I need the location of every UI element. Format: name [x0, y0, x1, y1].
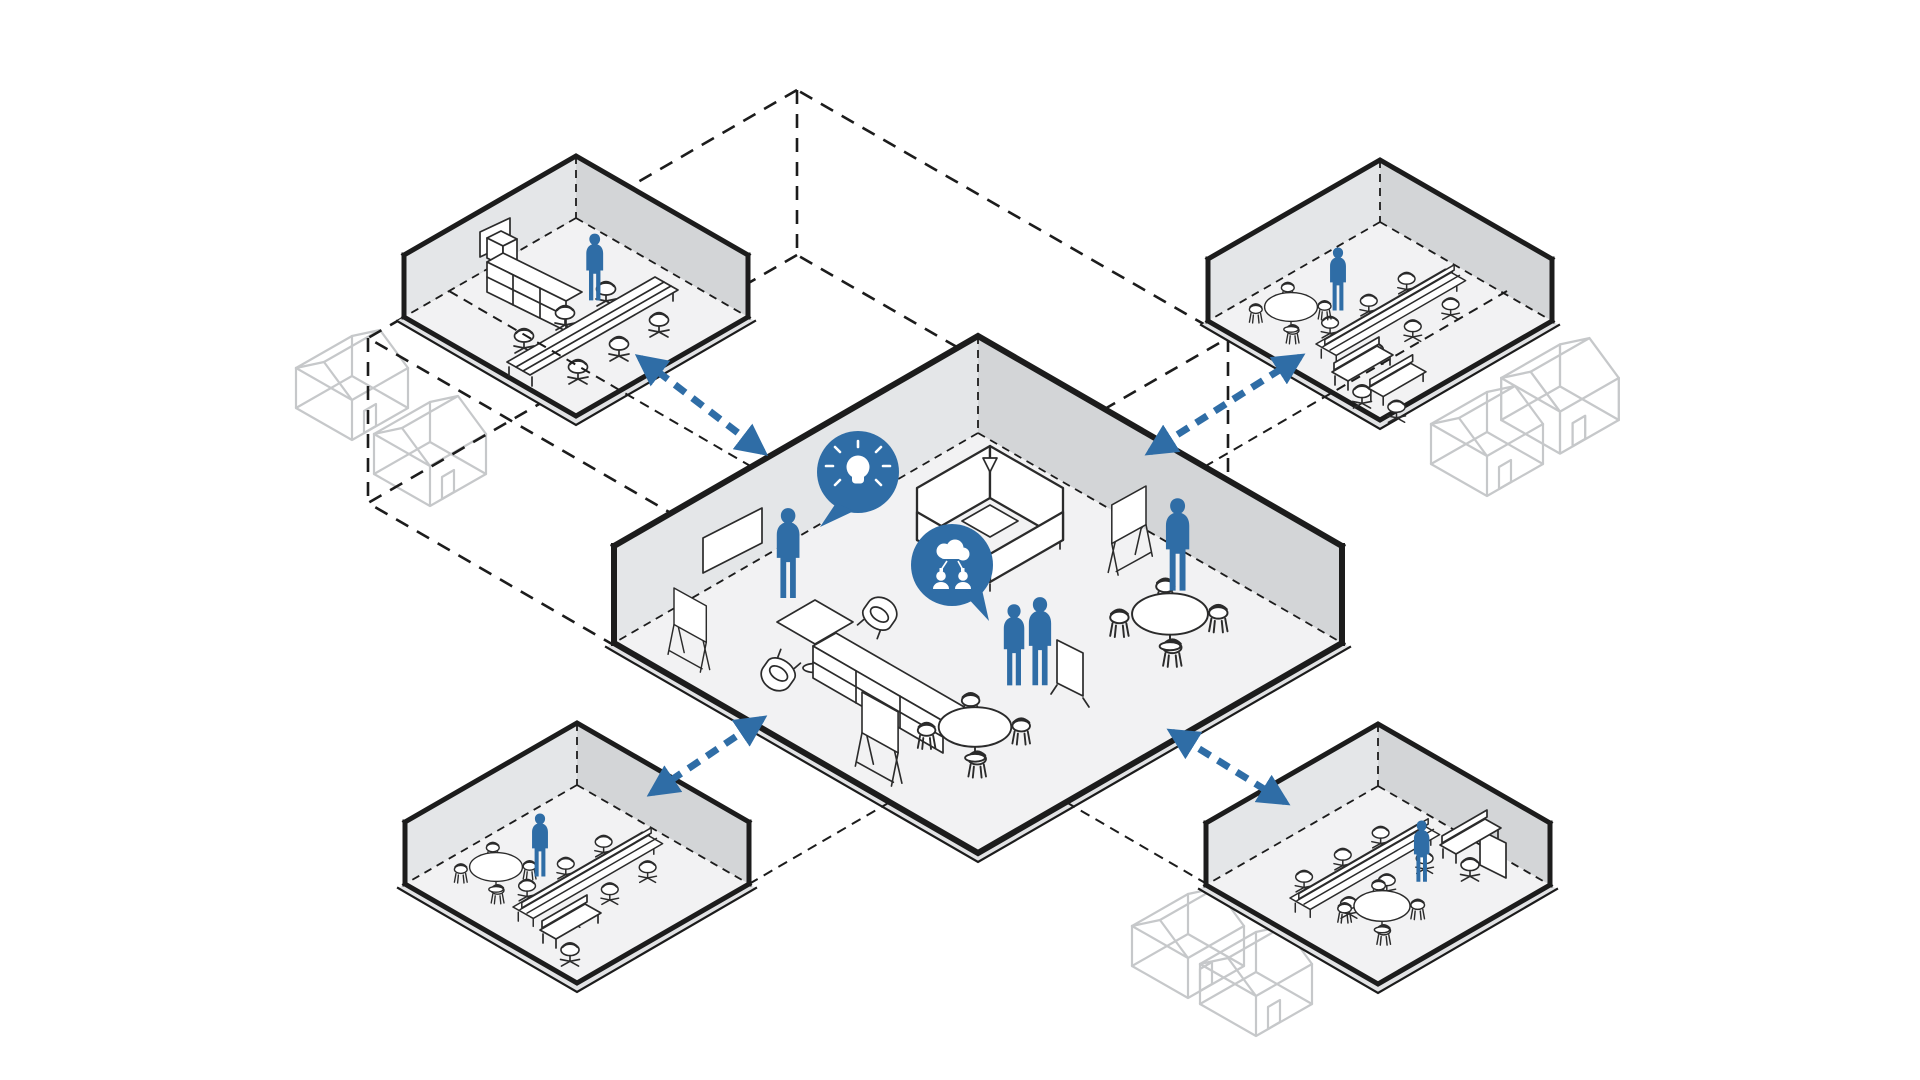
- house-outline: [1501, 338, 1619, 454]
- room-bottom-left: [398, 723, 756, 992]
- house-outline: [1431, 386, 1543, 496]
- room-bottom-right: [1199, 724, 1557, 993]
- room-top-left: [397, 156, 755, 425]
- isometric-diagram: [0, 0, 1920, 1080]
- diagram-canvas: [0, 0, 1920, 1080]
